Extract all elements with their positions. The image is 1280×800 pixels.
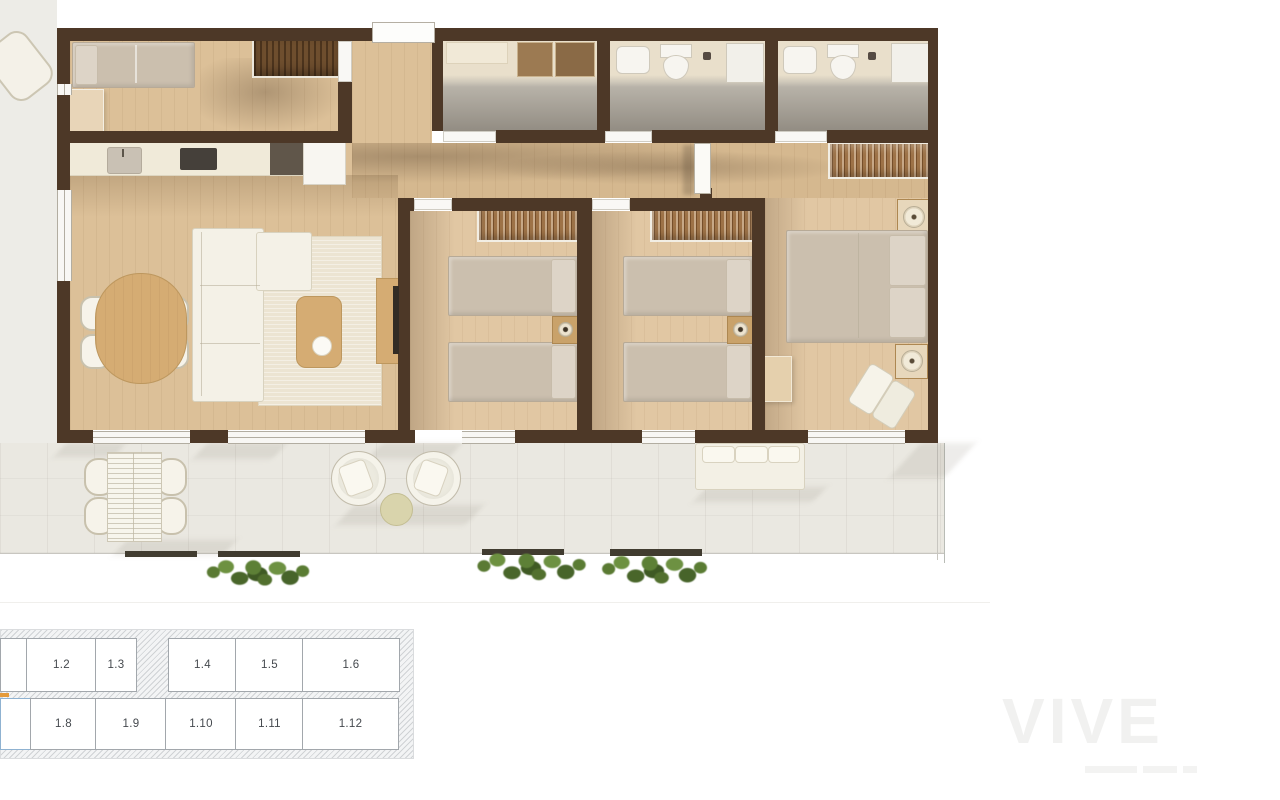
table-lamp: [903, 206, 925, 228]
bathroom-sink: [616, 46, 650, 74]
sliding-door: [93, 431, 190, 444]
door-threshold: [443, 131, 496, 142]
tv-screen: [393, 286, 399, 354]
window: [57, 190, 72, 281]
outdoor-sofa: [695, 443, 805, 490]
fridge: [303, 140, 346, 185]
keyplan-unit-cell[interactable]: 1.11: [235, 698, 304, 750]
bed-pillow: [889, 235, 926, 286]
keyplan-unit-cell-highlighted[interactable]: [0, 698, 32, 750]
door-threshold: [592, 199, 630, 210]
door-threshold: [775, 131, 827, 142]
wall: [928, 28, 938, 443]
table-lamp: [558, 322, 573, 337]
shower-fixture: [868, 52, 876, 60]
wall: [905, 430, 938, 443]
watermark-subtext-bar: [1143, 766, 1177, 773]
keyplan-unit-cell[interactable]: 1.5: [235, 638, 304, 692]
wall: [57, 28, 938, 41]
wall: [577, 198, 592, 430]
bed-pillow: [75, 45, 98, 85]
sofa-cushion: [702, 446, 735, 463]
bed-pillow: [551, 345, 576, 399]
sofa-chaise: [256, 232, 312, 291]
sofa-back-edge: [201, 232, 202, 396]
floorplan-render: 1.2 1.3 1.4 1.5 1.6 1.8 1.9 1.10 1.11 1.…: [0, 0, 1280, 800]
kitchen-cabinet: [270, 142, 303, 175]
kitchen-sink: [107, 147, 142, 174]
interior-door-leaf: [694, 143, 711, 194]
plant: [600, 550, 708, 592]
wall: [592, 430, 642, 443]
watermark-subtext-bar: [1183, 766, 1197, 773]
sink-faucet: [122, 149, 124, 157]
wall: [652, 130, 775, 143]
wall: [365, 430, 415, 443]
wall: [432, 41, 443, 131]
wall: [695, 430, 808, 443]
shower-tray: [891, 43, 929, 83]
wardrobe: [252, 38, 342, 78]
watermark-subtext-bar: [1085, 766, 1137, 773]
entry-hall-floor: [352, 41, 432, 143]
sofa-seam: [200, 285, 260, 286]
wall: [57, 281, 70, 443]
planter-box: [125, 551, 197, 557]
dresser: [762, 356, 792, 402]
wall: [452, 198, 592, 211]
sliding-door: [808, 431, 905, 444]
keyplan-unit-cell[interactable]: 1.3: [95, 638, 137, 692]
image-edge-line: [0, 602, 990, 603]
wall: [515, 430, 592, 443]
bed-sheet-fold: [135, 45, 137, 83]
wall: [338, 82, 352, 131]
keyplan-unit-cell[interactable]: [0, 638, 28, 692]
bed-pillow: [726, 259, 751, 313]
shower-fixture: [703, 52, 711, 60]
washer: [517, 42, 553, 77]
wall: [190, 430, 228, 443]
wall: [57, 430, 93, 443]
outdoor-table: [107, 452, 162, 542]
wall: [827, 130, 928, 143]
outdoor-side-table: [380, 493, 413, 526]
bed-pillow: [889, 287, 926, 338]
plant: [475, 548, 587, 588]
wall: [597, 41, 610, 131]
sofa-cushion: [735, 446, 768, 463]
window: [642, 431, 695, 444]
bed-pillow: [551, 259, 576, 313]
wall: [630, 198, 765, 211]
dining-table: [95, 273, 187, 384]
wall: [398, 198, 410, 443]
cabinet: [68, 89, 104, 134]
coffee-table: [296, 296, 342, 368]
keyplan-unit-cell[interactable]: 1.4: [168, 638, 237, 692]
laundry-cabinet: [446, 42, 508, 64]
window: [462, 431, 515, 444]
sofa: [192, 228, 264, 402]
wall: [57, 28, 70, 84]
keyplan-unit-cell[interactable]: 1.8: [30, 698, 97, 750]
cooktop: [180, 148, 217, 170]
table-lamp: [901, 350, 923, 372]
door-threshold: [338, 41, 352, 82]
shower-tray: [726, 43, 764, 83]
sliding-door: [228, 431, 365, 444]
door-threshold: [414, 199, 452, 210]
table-lamp: [733, 322, 748, 337]
keyplan-orange-mark: [0, 693, 9, 697]
bed-pillow: [726, 345, 751, 399]
window: [57, 84, 72, 95]
keyplan-unit-cell[interactable]: 1.2: [26, 638, 97, 692]
bed-fold: [858, 233, 859, 338]
door-threshold: [605, 131, 652, 142]
wall: [752, 198, 765, 430]
watermark-logo: VIVE: [1002, 684, 1164, 758]
dryer: [555, 42, 595, 77]
sofa-seam: [200, 343, 260, 344]
keyplan-unit-cell[interactable]: 1.10: [165, 698, 237, 750]
table-bowl: [312, 336, 332, 356]
sofa-cushion: [768, 446, 800, 463]
keyplan-unit-cell[interactable]: 1.9: [95, 698, 167, 750]
wall: [496, 130, 605, 143]
bathroom-sink: [783, 46, 817, 74]
keyplan-unit-cell[interactable]: 1.12: [302, 698, 399, 750]
wall: [57, 131, 352, 143]
entrance-door: [372, 22, 435, 43]
plant: [205, 556, 310, 592]
keyplan-unit-cell[interactable]: 1.6: [302, 638, 400, 692]
wall: [765, 41, 778, 131]
shadow: [193, 443, 287, 459]
wardrobe: [828, 142, 932, 179]
